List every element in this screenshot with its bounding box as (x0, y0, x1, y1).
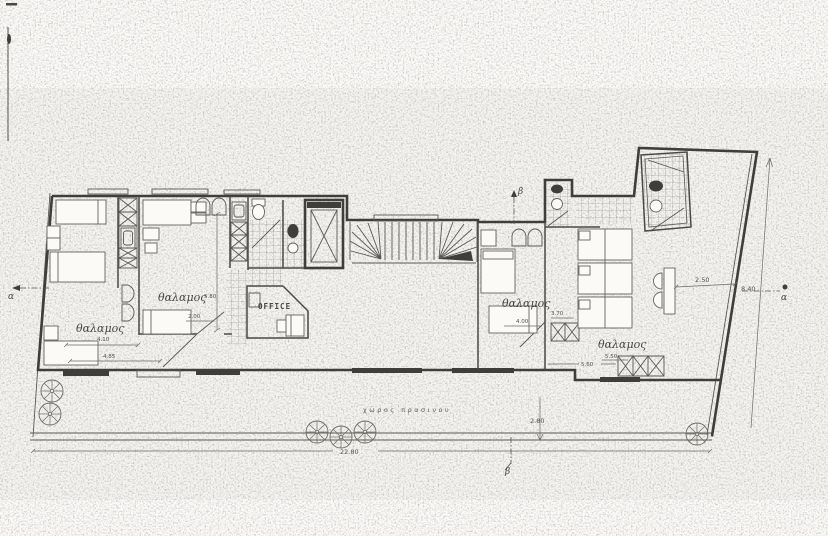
room-right-label: θαλαμος (502, 297, 551, 310)
dim-room-center-depth: 5.80 (204, 294, 217, 300)
table-icon (664, 268, 675, 314)
dim-terrace-width: 2.50 (695, 276, 709, 284)
scanned-floor-plan-page: OFFICE (0, 0, 828, 536)
room-wing-label: θαλαμος (598, 338, 647, 351)
dim-room-left-total: 4.85 (103, 354, 116, 360)
toilet-icon (252, 199, 265, 220)
office-label: OFFICE (258, 302, 291, 311)
dim-room-wing-width: 5.50 (605, 354, 618, 360)
dim-room-center-door: 2.00 (188, 314, 201, 320)
green-space-label: χωρος πρασινου (363, 406, 451, 414)
floor-plan-drawing: OFFICE (0, 0, 828, 536)
beta-bottom-label: β (504, 467, 510, 477)
dim-side-length: 8.40 (741, 285, 755, 293)
dim-green-depth: 2.80 (530, 417, 544, 425)
dim-room-right-depth: 3.70 (551, 311, 564, 317)
alpha-left-label: α (8, 292, 14, 302)
alpha-right-label: α (781, 293, 787, 303)
dim-site-length: 22.80 (340, 448, 359, 456)
dim-room-left-width: 4.10 (97, 337, 110, 343)
bathroom-wing (641, 152, 691, 231)
room-center-label: θαλαμος (158, 291, 207, 304)
beta-top-label: β (517, 187, 523, 197)
dim-room-wing-line: 5.60 (581, 362, 594, 368)
room-left-label: θαλαμος (76, 322, 125, 335)
dim-room-right-width: 4.00 (516, 319, 529, 325)
